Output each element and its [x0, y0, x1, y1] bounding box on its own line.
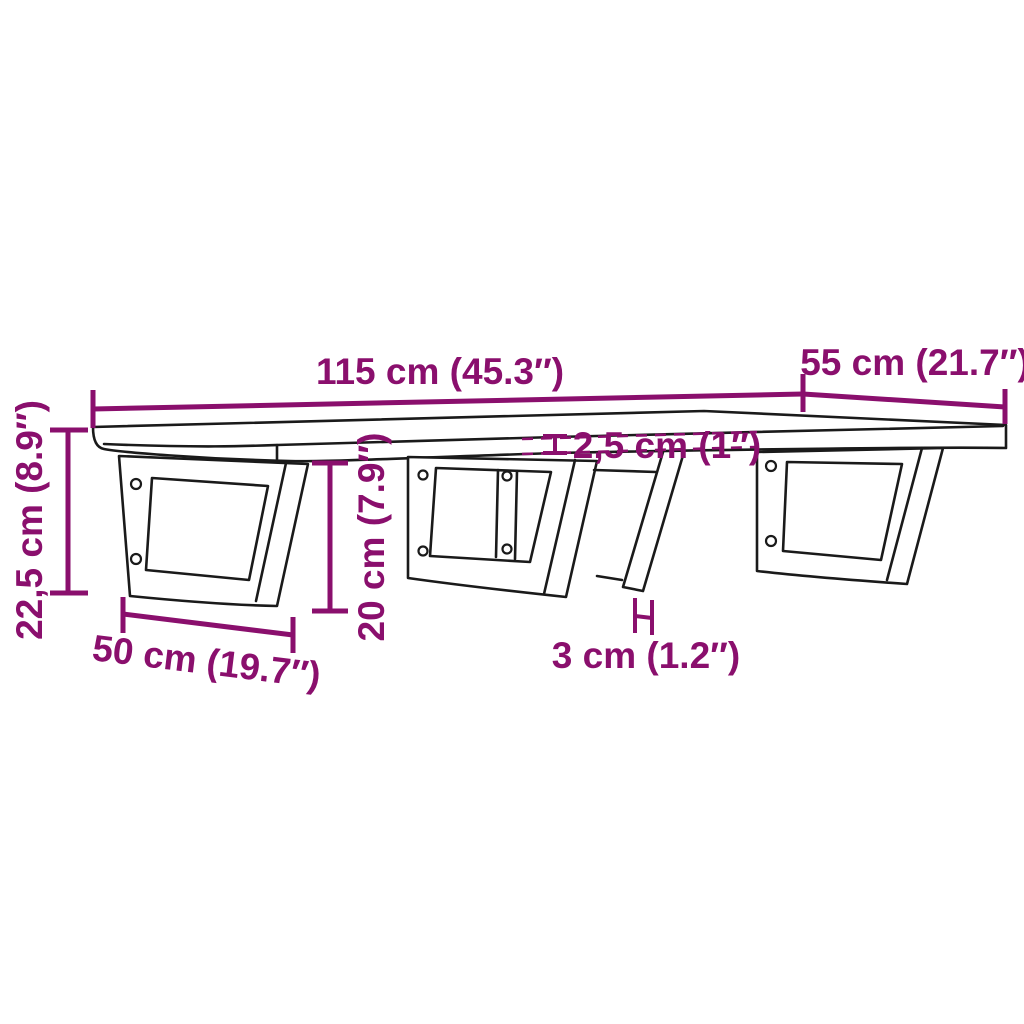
- bracket-left: [119, 456, 308, 606]
- bracket-middle-back-window-edges: [594, 470, 656, 580]
- label-board-width: 115 cm (45.3″): [316, 351, 564, 392]
- label-total-height: 22,5 cm (8.9″): [9, 400, 50, 640]
- label-board-thickness: 2,5 cm (1″): [573, 425, 761, 466]
- label-bracket-height: 20 cm (7.9″): [351, 433, 392, 642]
- dim-board-depth-line: [803, 394, 1005, 407]
- dim-board-width-line: [93, 394, 803, 409]
- product-dimension-diagram: 115 cm (45.3″) 55 cm (21.7″) 22,5 cm (8.…: [0, 0, 1024, 1024]
- dim-bracket-depth-line: [123, 614, 293, 635]
- dim-bracket-depth: 50 cm (19.7″): [90, 597, 323, 696]
- label-bracket-depth: 50 cm (19.7″): [90, 627, 323, 696]
- bracket-right: [757, 448, 943, 584]
- label-bar-width: 3 cm (1.2″): [552, 635, 740, 676]
- diagram-canvas: 115 cm (45.3″) 55 cm (21.7″) 22,5 cm (8.…: [0, 0, 1024, 1024]
- dim-bar-width: 3 cm (1.2″): [552, 598, 740, 676]
- dim-bar-width-line: [635, 616, 652, 618]
- dim-bracket-height: 20 cm (7.9″): [312, 433, 392, 642]
- label-board-depth: 55 cm (21.7″): [800, 342, 1024, 383]
- dim-total-height: 22,5 cm (8.9″): [9, 400, 88, 640]
- dim-board-depth: 55 cm (21.7″): [800, 342, 1024, 424]
